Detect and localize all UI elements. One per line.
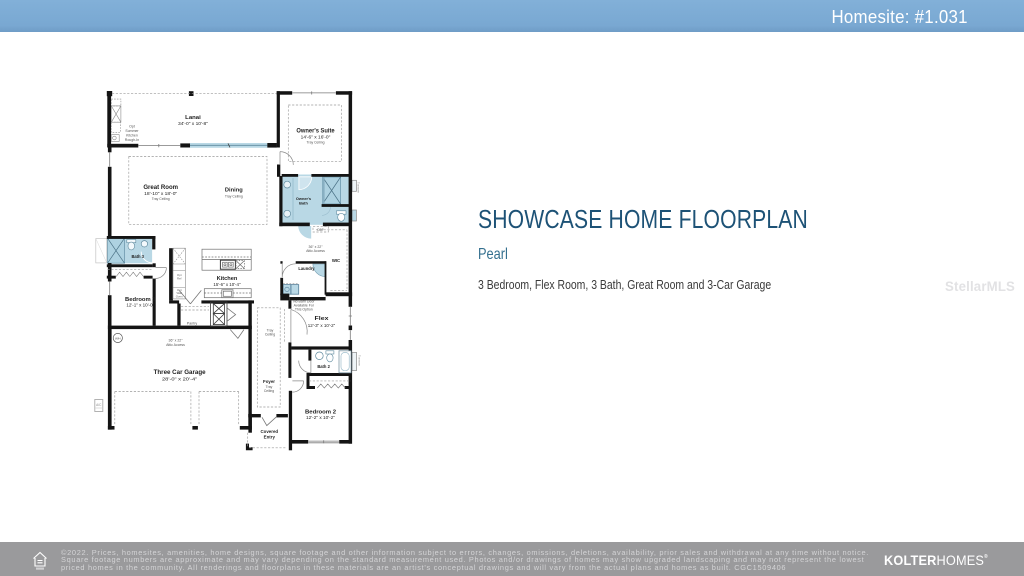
svg-text:Flex: Flex: [315, 316, 330, 322]
svg-text:Rough-In: Rough-In: [125, 138, 139, 142]
svg-text:Tray Ceiling: Tray Ceiling: [152, 197, 170, 201]
svg-text:12'-1" x 10'-0": 12'-1" x 10'-0": [126, 303, 154, 308]
svg-text:A/C: A/C: [96, 403, 102, 407]
svg-text:36" x 22": 36" x 22": [309, 245, 324, 249]
svg-text:28'-0" x 20'-4": 28'-0" x 20'-4": [162, 377, 198, 382]
svg-text:Attic Access: Attic Access: [306, 249, 325, 253]
svg-text:Laundry: Laundry: [298, 266, 315, 271]
svg-text:Owner's Suite: Owner's Suite: [296, 128, 335, 135]
svg-text:Kitchen: Kitchen: [126, 134, 138, 138]
svg-text:Tray Ceiling: Tray Ceiling: [225, 194, 243, 198]
svg-text:Bath: Bath: [299, 201, 308, 206]
svg-text:Three Car Garage: Three Car Garage: [154, 369, 206, 376]
svg-text:Attic Access: Attic Access: [166, 343, 185, 347]
svg-text:18'-10" x 18'-0": 18'-10" x 18'-0": [144, 191, 178, 196]
svg-text:Ref: Ref: [177, 276, 182, 280]
svg-text:12'-2" x 10'-2": 12'-2" x 10'-2": [306, 415, 336, 420]
svg-text:DBF: DBF: [317, 228, 323, 232]
svg-text:36" x 22": 36" x 22": [169, 338, 184, 342]
svg-text:Entry: Entry: [264, 435, 276, 440]
svg-text:Foyer: Foyer: [263, 379, 275, 384]
svg-text:Transom: Transom: [357, 182, 361, 194]
svg-text:14'-6" x 16'-0": 14'-6" x 16'-0": [301, 135, 331, 140]
svg-text:Lanai: Lanai: [185, 115, 201, 121]
svg-text:34'-0" x 10'-8": 34'-0" x 10'-8": [178, 121, 209, 126]
svg-text:W/H: W/H: [115, 336, 121, 340]
svg-text:Bath 2: Bath 2: [317, 364, 330, 369]
svg-text:This Option: This Option: [295, 308, 313, 312]
svg-text:Transom: Transom: [358, 355, 362, 367]
svg-text:Covered: Covered: [261, 429, 279, 434]
svg-text:Pantry: Pantry: [187, 322, 198, 326]
svg-text:Great Room: Great Room: [143, 184, 178, 191]
svg-text:Opt: Opt: [129, 125, 135, 129]
svg-text:WIC: WIC: [332, 258, 340, 263]
svg-text:12'-3" x 10'-2": 12'-3" x 10'-2": [308, 323, 336, 328]
svg-text:Bath 3: Bath 3: [131, 254, 144, 259]
svg-text:Oven: Oven: [176, 294, 183, 298]
svg-text:Dining: Dining: [225, 188, 243, 194]
svg-text:15'-6" x 10'-4": 15'-6" x 10'-4": [213, 282, 241, 287]
svg-text:Ceiling: Ceiling: [265, 333, 275, 337]
svg-text:Ceiling: Ceiling: [264, 389, 274, 393]
svg-text:Tray Ceiling: Tray Ceiling: [307, 140, 325, 144]
svg-text:Summer: Summer: [125, 129, 139, 133]
